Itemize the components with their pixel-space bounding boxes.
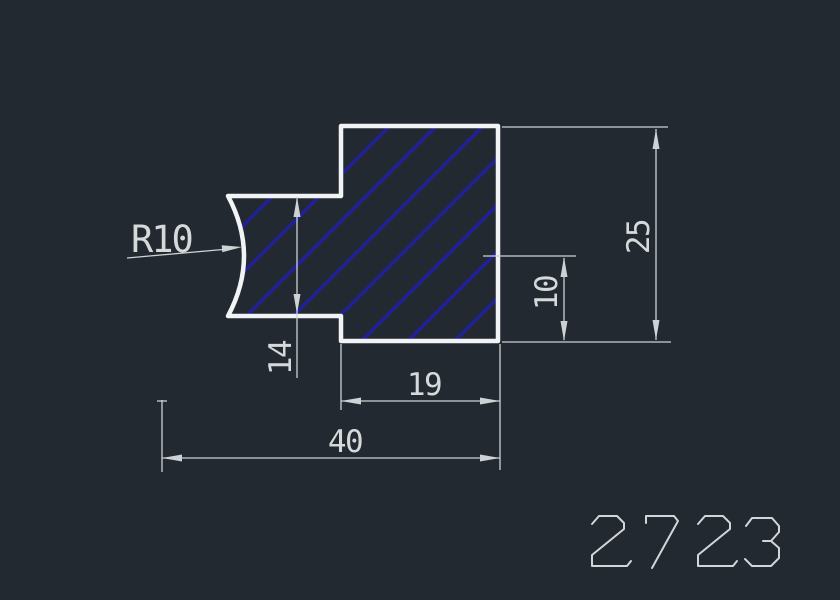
drawing-number-stroke xyxy=(698,516,737,566)
profile-hatch xyxy=(228,126,498,341)
dimension-label-14: 14 xyxy=(263,340,299,375)
drawing-number-stroke xyxy=(646,516,678,568)
arrowhead-down-icon xyxy=(653,320,660,340)
dimension-body-width: 19 xyxy=(341,344,500,470)
arrowhead-down-icon xyxy=(561,321,568,341)
arrowhead-right-icon xyxy=(480,455,500,462)
arrowhead-up-icon xyxy=(653,129,660,149)
dimension-overall-height: 25 xyxy=(502,127,671,342)
dimension-overall-width: 40 xyxy=(157,400,500,472)
drawing-number xyxy=(592,516,779,568)
arrowhead-up-icon xyxy=(561,257,568,277)
radius-callout: R10 xyxy=(127,218,242,261)
dimension-label-10: 10 xyxy=(529,276,565,310)
cad-drawing: 25 10 14 19 xyxy=(0,0,840,600)
dimension-label-40: 40 xyxy=(328,424,362,460)
arrowhead-right-icon xyxy=(480,398,500,405)
arrowhead-left-icon xyxy=(341,398,361,405)
dimension-label-19: 19 xyxy=(407,367,441,403)
arrowhead-right-icon xyxy=(222,245,242,252)
arrowhead-left-icon xyxy=(162,455,182,462)
radius-label: R10 xyxy=(131,218,192,261)
profile-section xyxy=(228,126,498,341)
cad-viewport: 25 10 14 19 xyxy=(0,0,840,600)
drawing-number-stroke xyxy=(745,541,779,566)
dimension-label-25: 25 xyxy=(621,220,657,254)
drawing-number-stroke xyxy=(746,518,779,541)
drawing-number-stroke xyxy=(592,516,631,566)
